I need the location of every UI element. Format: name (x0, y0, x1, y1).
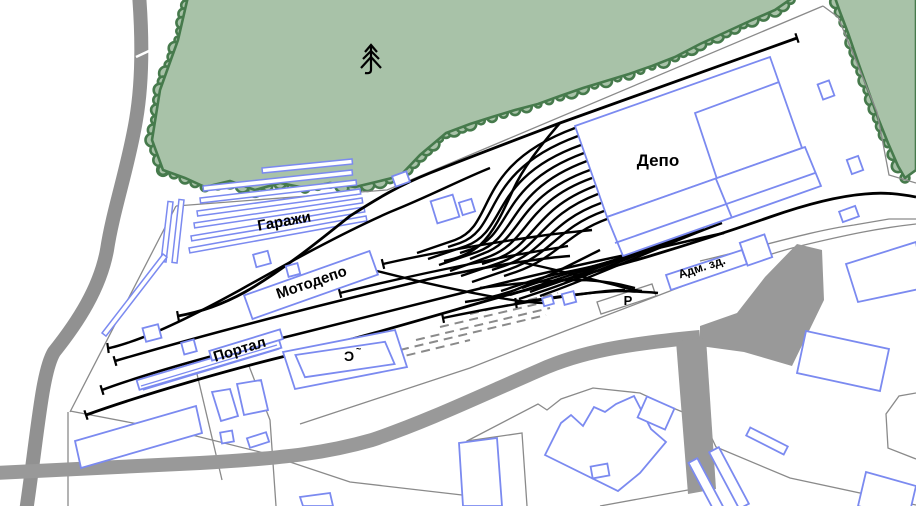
svg-text:Депо: Депо (637, 151, 679, 170)
svg-text:Р: Р (624, 293, 633, 308)
svg-text:~: ~ (356, 344, 361, 354)
svg-text:C: C (344, 348, 354, 364)
